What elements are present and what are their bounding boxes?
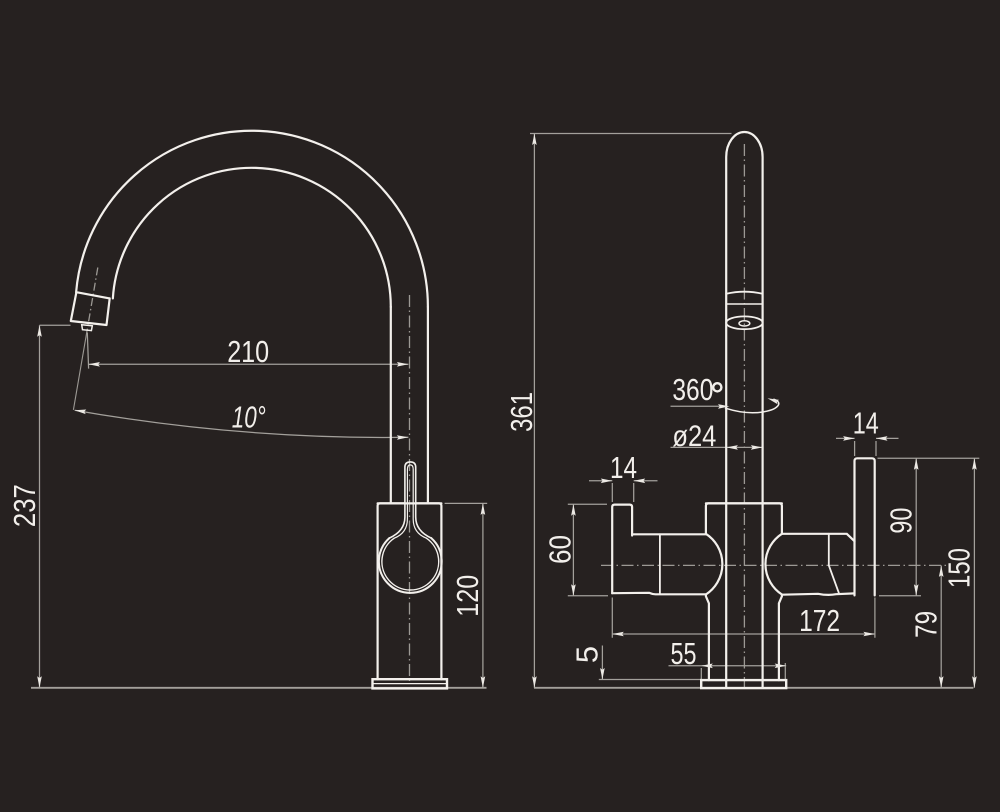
svg-text:ø24: ø24 [672, 420, 716, 453]
svg-text:360: 360 [672, 372, 713, 407]
svg-text:10°: 10° [232, 400, 266, 435]
svg-text:90: 90 [883, 508, 918, 534]
svg-text:14: 14 [853, 406, 879, 441]
svg-text:5: 5 [570, 646, 605, 663]
svg-text:237: 237 [7, 484, 42, 527]
svg-text:172: 172 [799, 603, 840, 638]
svg-text:361: 361 [504, 392, 539, 432]
svg-text:79: 79 [909, 611, 944, 638]
svg-text:120: 120 [450, 575, 485, 617]
svg-text:55: 55 [671, 636, 697, 671]
svg-text:14: 14 [610, 450, 637, 485]
svg-text:150: 150 [941, 548, 976, 588]
svg-text:210: 210 [227, 334, 269, 369]
svg-text:60: 60 [542, 535, 577, 564]
